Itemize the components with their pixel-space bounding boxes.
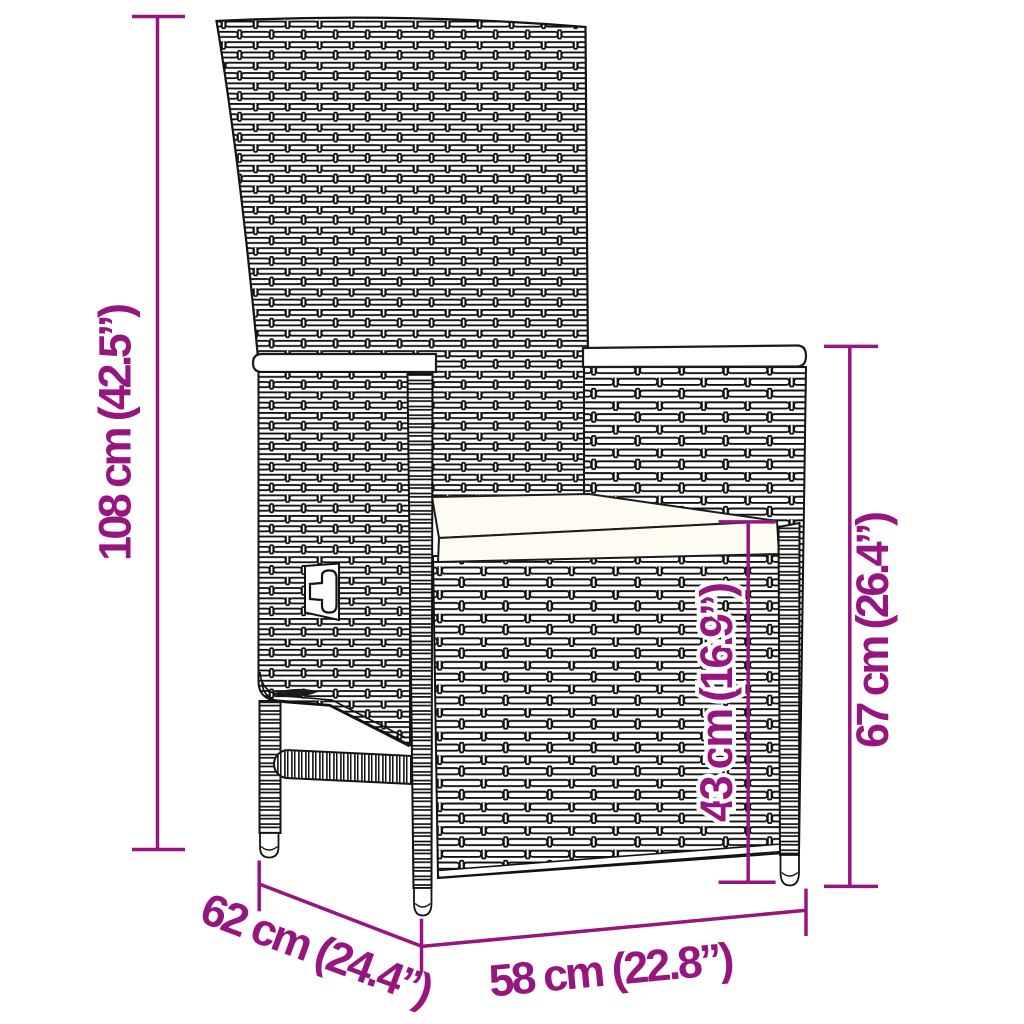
svg-text:67 cm (26.4”): 67 cm (26.4”) [847,511,898,748]
svg-text:108 cm (42.5”): 108 cm (42.5”) [90,303,141,561]
svg-text:43 cm (16.9”): 43 cm (16.9”) [691,582,742,822]
